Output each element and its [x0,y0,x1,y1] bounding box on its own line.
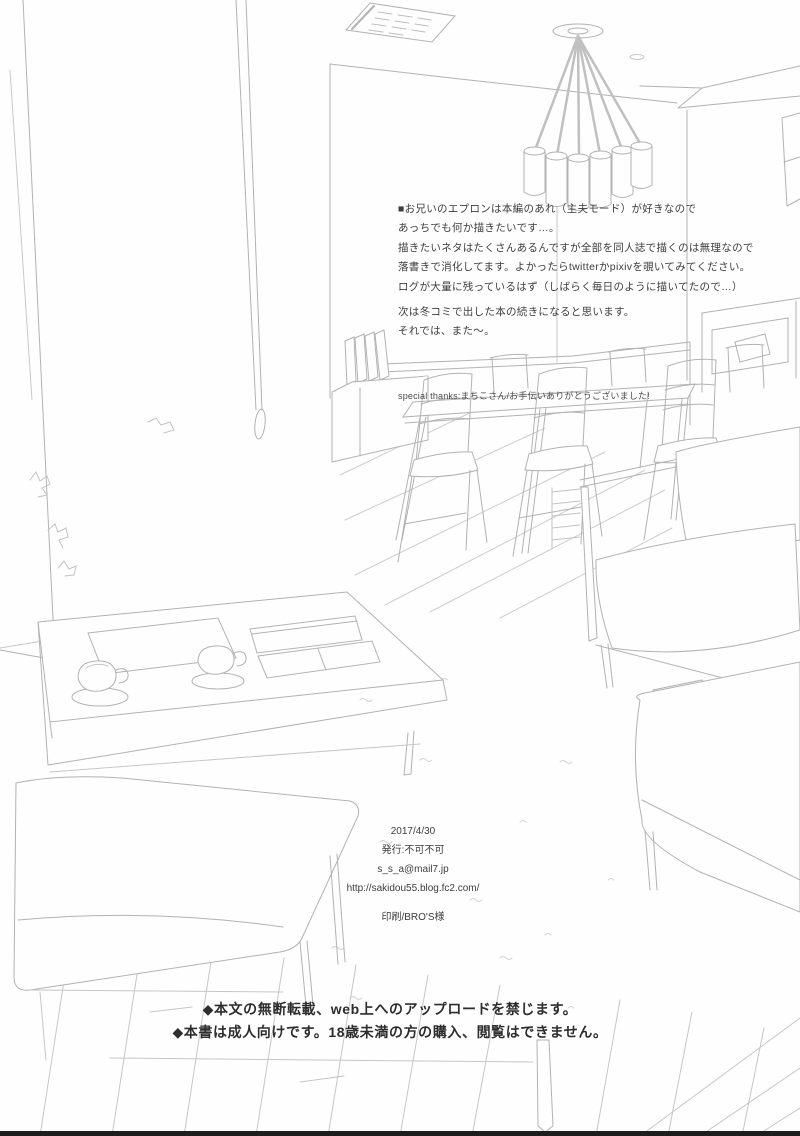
wood-plank-floor-bottom [40,955,800,1136]
afterword-line: 落書きで消化してます。よかったらtwitterかpixivを覗いてみてください。 [398,258,754,277]
afterword-line: 次は冬コミで出した本の続きになると思います。 [398,303,635,322]
page-edge-bar [0,1131,800,1136]
printer-credit: 印刷/BRO'S様 [318,908,508,927]
contact-email: s_s_a@mail7.jp [318,860,508,879]
sofa-seat-cushion [596,524,800,652]
furniture-leg [537,1040,553,1132]
left-wall [0,0,170,660]
notice-no-reprint: ◆本文の無断転載、web上へのアップロードを禁じます。 [0,998,780,1021]
plant-sprigs [30,418,174,576]
colophon: 2017/4/30 発行:不可不可 s_s_a@mail7.jp http://… [318,822,508,927]
afterword-line: あっちでも何か描きたいです…。 [398,219,754,238]
publication-date: 2017/4/30 [318,822,508,841]
coffee-table [38,592,447,775]
special-thanks-note: special thanks:まちこさん/お手伝いありがとうございました! [398,389,650,402]
afterword-line: ログが大量に残っているはず（しばらく毎日のように描いてたので…） [398,278,754,297]
ceiling-vent [346,3,455,42]
wall-cabinet [782,113,800,206]
corner-sofa [635,662,800,912]
afterword-closing-text: 次は冬コミで出した本の続きになると思います。 それでは、また〜。 [398,303,635,342]
pendant-chandelier [524,24,652,211]
dining-chairs-far [490,344,764,392]
hanging-cord [236,0,267,439]
legal-notices: ◆本文の無断転載、web上へのアップロードを禁じます。 ◆本書は成人向けです。1… [0,998,780,1044]
afterword-line: ■お兄いのエプロンは本編のあれ（主夫モード）が好きなので [398,200,754,219]
website-url: http://sakidou55.blog.fc2.com/ [318,879,508,898]
living-room-line-art [0,0,800,1136]
afterword-text: ■お兄いのエプロンは本編のあれ（主夫モード）が好きなので あっちでも何か描きたい… [398,200,754,297]
afterword-line: それでは、また〜。 [398,322,635,341]
publisher-circle: 発行:不可不可 [318,841,508,860]
notice-adults-only: ◆本書は成人向けです。18歳未満の方の購入、閲覧はできません。 [0,1021,780,1044]
right-sideboard [702,298,800,392]
doujinshi-afterword-page: ■お兄いのエプロンは本編のあれ（主夫モード）が好きなので あっちでも何か描きたい… [0,0,800,1136]
afterword-line: 描きたいネタはたくさんあるんですが全部を同人誌で描くのは無理なので [398,239,754,258]
